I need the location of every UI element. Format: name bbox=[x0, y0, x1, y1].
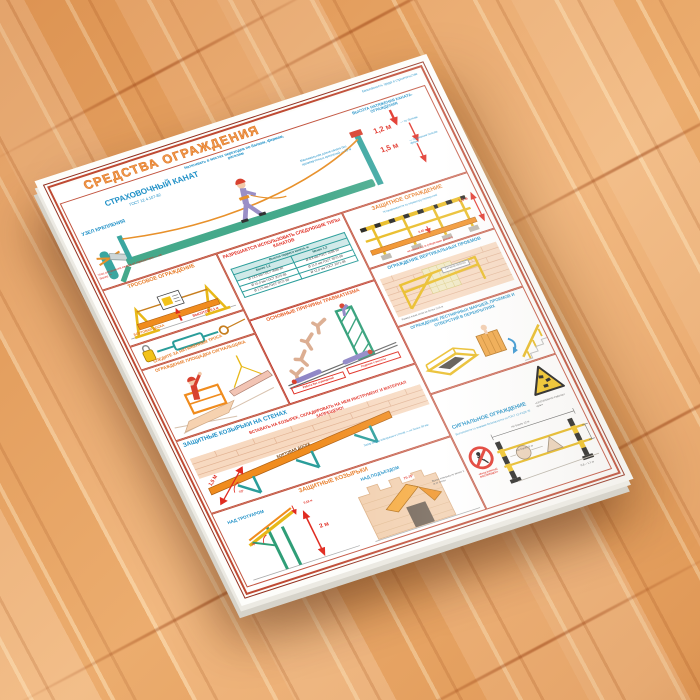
safety-poster: СРЕДСТВА ОГРАЖДЕНИЯ Безопасность труда в… bbox=[34, 54, 633, 606]
photo-scene: СРЕДСТВА ОГРАЖДЕНИЯ Безопасность труда в… bbox=[0, 0, 700, 700]
warning-triangle-icon bbox=[521, 360, 567, 398]
poster-content: СРЕДСТВА ОГРАЖДЕНИЯ Безопасность труда в… bbox=[53, 70, 616, 590]
